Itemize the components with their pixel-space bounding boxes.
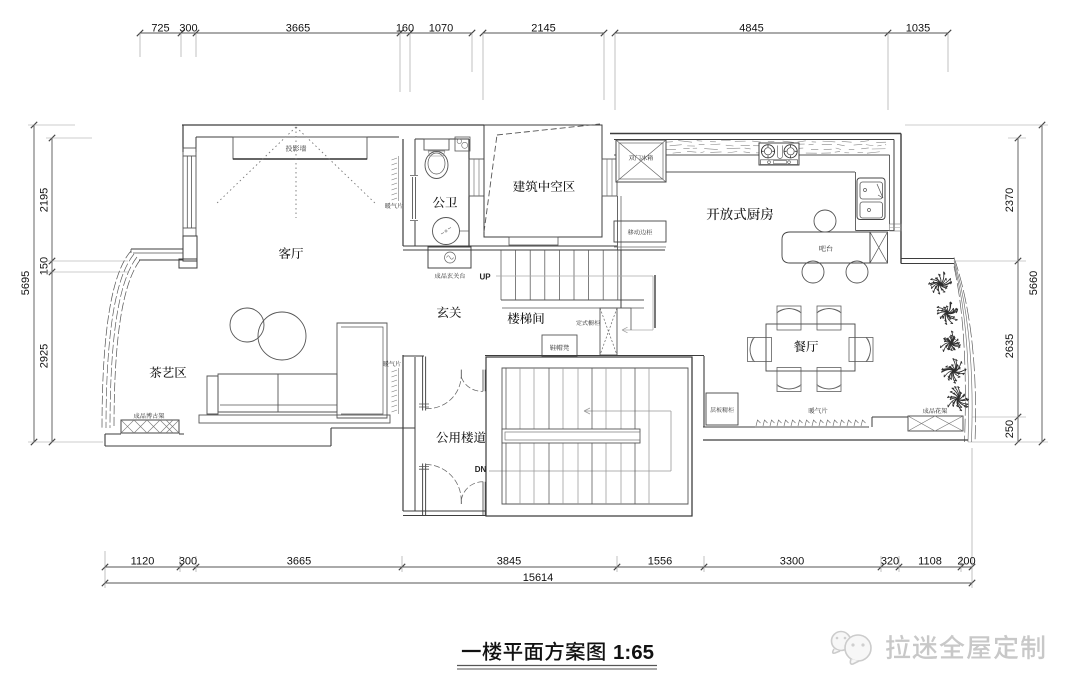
svg-text:1108: 1108 xyxy=(918,556,942,568)
svg-text:5660: 5660 xyxy=(1028,271,1040,295)
svg-text:UP: UP xyxy=(479,273,491,282)
svg-text:2145: 2145 xyxy=(531,22,555,34)
svg-text:2635: 2635 xyxy=(1004,334,1016,358)
svg-text:5695: 5695 xyxy=(20,271,32,295)
svg-text:1035: 1035 xyxy=(906,22,930,34)
svg-text:3665: 3665 xyxy=(287,556,311,568)
svg-text:15614: 15614 xyxy=(523,572,554,584)
svg-text:200: 200 xyxy=(957,556,975,568)
svg-text:150: 150 xyxy=(39,257,51,275)
svg-text:2195: 2195 xyxy=(39,188,51,212)
svg-text:250: 250 xyxy=(1004,420,1016,438)
svg-text:DN: DN xyxy=(475,465,487,474)
svg-text:160: 160 xyxy=(396,22,414,34)
svg-text:3300: 3300 xyxy=(780,556,804,568)
svg-text:300: 300 xyxy=(179,22,197,34)
svg-text:1:65: 1:65 xyxy=(613,641,654,664)
svg-text:300: 300 xyxy=(179,556,197,568)
svg-text:3845: 3845 xyxy=(497,556,521,568)
svg-text:2925: 2925 xyxy=(39,344,51,368)
svg-text:2370: 2370 xyxy=(1004,188,1016,212)
svg-text:3665: 3665 xyxy=(286,22,310,34)
svg-text:4845: 4845 xyxy=(739,22,763,34)
svg-text:725: 725 xyxy=(151,22,169,34)
svg-text:1070: 1070 xyxy=(429,22,453,34)
svg-text:320: 320 xyxy=(881,556,899,568)
svg-text:1556: 1556 xyxy=(648,556,672,568)
svg-text:1120: 1120 xyxy=(131,556,155,568)
